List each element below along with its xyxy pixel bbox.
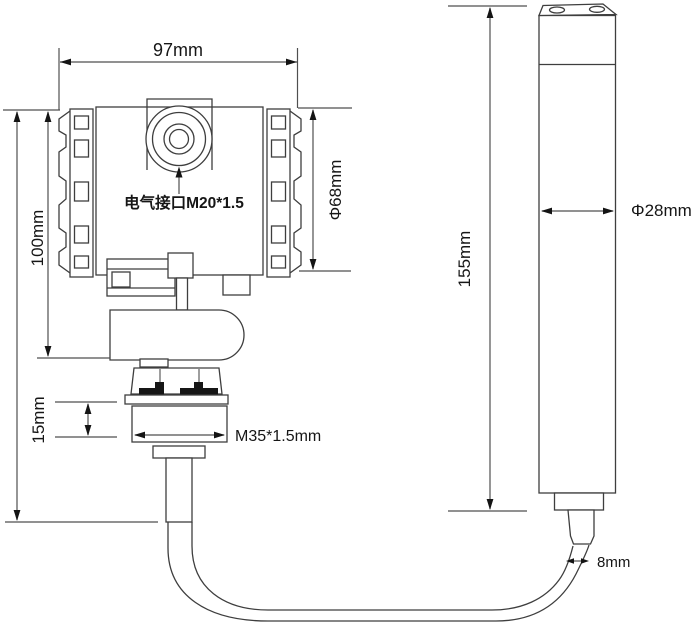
probe-neck-step1	[555, 493, 604, 510]
left-clamp-profile	[59, 111, 70, 273]
drawing-canvas: 97mm 100mm 15mm Φ68mm 电气接口M20	[0, 0, 700, 629]
gasket	[194, 382, 203, 388]
thread-section	[132, 406, 227, 442]
probe-neck-step2	[568, 510, 594, 544]
body-height-label: 100mm	[28, 210, 47, 267]
head-diameter-label: Φ68mm	[326, 160, 345, 221]
probe-body	[539, 16, 616, 494]
process-thread-label: M35*1.5mm	[235, 428, 321, 445]
mounting-flange	[125, 395, 228, 404]
connection-pipe	[166, 458, 192, 522]
gasket	[155, 382, 164, 388]
sensor-chamber	[110, 310, 244, 367]
probe-diameter-label: Φ28mm	[631, 201, 692, 220]
right-clamp-profile	[290, 111, 301, 273]
transmitter-head	[59, 99, 301, 277]
dimension-thread-length: 15mm	[29, 396, 117, 443]
right-end-cap	[267, 109, 301, 277]
probe-length-label: 155mm	[455, 231, 474, 288]
cable-diameter-label: 8mm	[597, 554, 630, 571]
gasket-strip	[180, 388, 218, 395]
dimension-cable-diameter: 8mm	[566, 554, 630, 571]
dimension-probe-length: 155mm	[448, 6, 527, 511]
thread-length-label: 15mm	[29, 396, 48, 443]
left-end-cap	[59, 109, 93, 277]
electrical-interface-label: 电气接口M20*1.5	[124, 193, 244, 212]
dimension-drawing: 97mm 100mm 15mm Φ68mm 电气接口M20	[0, 0, 700, 629]
electrical-port	[146, 106, 212, 172]
top-width-label: 97mm	[153, 40, 203, 60]
gasket-strip	[139, 388, 164, 395]
collar	[153, 446, 205, 458]
process-connection	[125, 368, 228, 522]
probe	[539, 4, 616, 544]
dimension-head-diameter: Φ68mm	[298, 108, 352, 271]
dimension-overall-height	[14, 111, 21, 521]
cable	[168, 522, 589, 621]
